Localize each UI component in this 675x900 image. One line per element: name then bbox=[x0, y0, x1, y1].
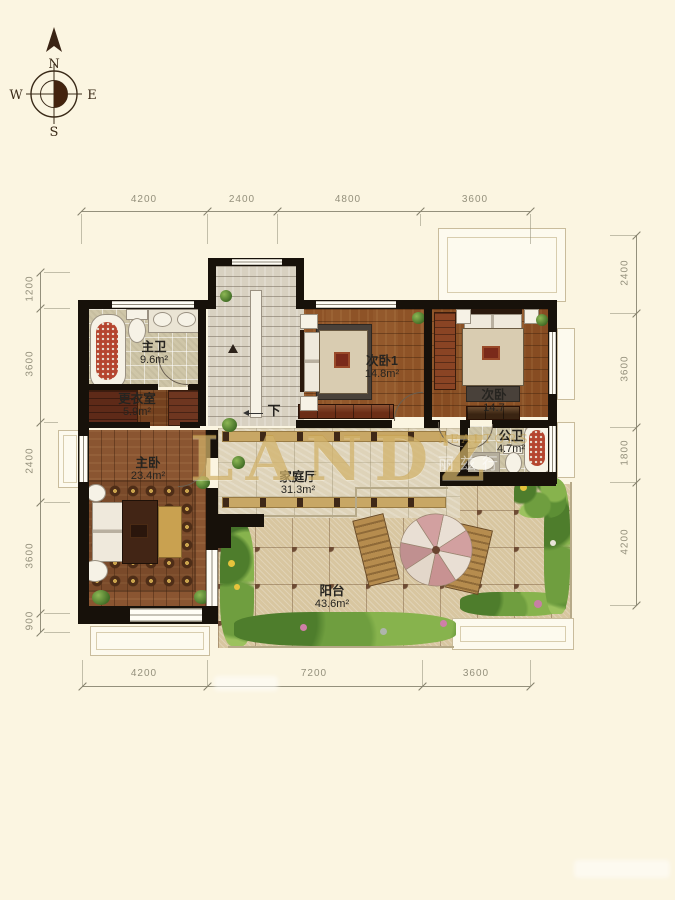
flower-dot bbox=[300, 624, 307, 631]
wall bbox=[88, 384, 158, 390]
dim-ext bbox=[44, 613, 70, 614]
dim-top-2: 4800 bbox=[298, 194, 398, 205]
dim-ext bbox=[420, 214, 421, 226]
room-area: 43.6m² bbox=[288, 598, 376, 610]
flower-dot bbox=[440, 620, 447, 627]
compass-half-fill bbox=[54, 81, 68, 108]
room-label-balcony: 阳台 43.6m² bbox=[288, 584, 376, 610]
faint-watermark bbox=[574, 860, 670, 878]
stair-direction-arrow-icon bbox=[228, 344, 238, 353]
dim-ext bbox=[81, 214, 82, 244]
wall bbox=[188, 384, 198, 390]
room-area: 9.6m² bbox=[124, 354, 184, 366]
room-area: 14.7 bbox=[464, 402, 524, 414]
wall bbox=[492, 420, 548, 428]
room-label-master-bedroom: 主卧 23.4m² bbox=[112, 456, 184, 482]
plant bbox=[220, 290, 232, 302]
dim-ext bbox=[44, 272, 70, 273]
dim-left-1: 3600 bbox=[25, 329, 36, 399]
stairs-down-arrow-line bbox=[248, 413, 263, 414]
floor-plan: N S W E 4200 2400 4800 3600 4200 7200 36… bbox=[0, 0, 675, 900]
bed-bench bbox=[158, 506, 182, 558]
greenery-strip bbox=[234, 612, 456, 646]
dim-ext bbox=[44, 308, 70, 309]
window-sill-right-1 bbox=[557, 328, 575, 400]
dim-top-0: 4200 bbox=[94, 194, 194, 205]
room-name: 次卧 bbox=[464, 388, 524, 402]
window bbox=[130, 608, 202, 622]
dim-top-1: 2400 bbox=[192, 194, 292, 205]
plant bbox=[92, 590, 110, 605]
dim-line-bottom bbox=[82, 686, 530, 687]
window bbox=[549, 332, 556, 394]
compass: N S W E bbox=[8, 24, 100, 140]
sink-basin bbox=[177, 312, 196, 327]
room-area: 14.8m² bbox=[348, 368, 416, 380]
balcony-bottom-edge bbox=[228, 646, 454, 648]
flower-dot bbox=[234, 584, 240, 590]
dim-right-0: 2400 bbox=[620, 238, 631, 308]
dim-top-3: 3600 bbox=[425, 194, 525, 205]
eave-outline-bottom-left-inner bbox=[96, 632, 204, 650]
wardrobe bbox=[434, 312, 456, 390]
stairs-down-text: 下 bbox=[264, 404, 284, 419]
plant bbox=[536, 314, 548, 326]
compass-n: N bbox=[48, 57, 59, 72]
wall bbox=[424, 300, 432, 422]
stone-dot bbox=[380, 628, 387, 635]
flower-dot bbox=[550, 540, 556, 546]
dim-ext bbox=[610, 605, 636, 606]
sink-basin bbox=[153, 312, 172, 327]
dim-ext bbox=[530, 660, 531, 686]
dim-ext bbox=[44, 632, 70, 633]
wall bbox=[88, 422, 150, 428]
window bbox=[316, 301, 396, 308]
window bbox=[112, 301, 194, 308]
balcony-door bbox=[206, 550, 218, 606]
dim-ext bbox=[207, 660, 208, 686]
stairs-down-arrow-icon bbox=[243, 410, 249, 416]
compass-s: S bbox=[50, 125, 59, 140]
dim-ext bbox=[422, 660, 423, 686]
dim-ext bbox=[44, 502, 70, 503]
balcony-right-edge bbox=[570, 482, 572, 618]
faint-watermark bbox=[214, 676, 278, 691]
patio-umbrella bbox=[396, 510, 476, 590]
bathtub-interior bbox=[96, 322, 118, 380]
bay-window-outline-left-inner bbox=[63, 435, 77, 483]
stair-railing bbox=[250, 290, 262, 418]
flower-dot bbox=[534, 600, 542, 608]
room-label-master-bath: 主卫 9.6m² bbox=[124, 340, 184, 366]
north-arrow-icon bbox=[46, 27, 62, 52]
dim-ext bbox=[44, 422, 58, 423]
room-label-bedroom2: 次卧 14.7 bbox=[464, 388, 524, 414]
compass-e: E bbox=[87, 88, 97, 103]
dim-line-top bbox=[81, 211, 530, 212]
dim-line-right bbox=[636, 235, 637, 605]
dim-right-2: 1800 bbox=[620, 418, 631, 488]
bed-tray bbox=[482, 346, 500, 360]
dim-bottom-2: 3600 bbox=[426, 668, 526, 679]
room-name: 主卫 bbox=[124, 340, 184, 354]
dim-ext bbox=[530, 214, 531, 244]
dim-ext bbox=[207, 214, 208, 244]
nightstand bbox=[300, 314, 318, 329]
room-label-bedroom1: 次卧1 14.8m² bbox=[348, 354, 416, 380]
dim-ext bbox=[610, 235, 636, 236]
roof-outline-top-right-inner bbox=[447, 237, 557, 293]
room-name: 更衣室 bbox=[100, 392, 174, 406]
dim-left-2: 2400 bbox=[25, 426, 36, 496]
dim-line-left bbox=[40, 272, 41, 632]
dim-right-1: 3600 bbox=[620, 334, 631, 404]
step-outline-balcony-corner-inner bbox=[460, 626, 566, 642]
watermark-sub-cn: 丽兹行 bbox=[438, 450, 558, 474]
flower-dot bbox=[228, 560, 235, 567]
watermark-sub: REALTORS bbox=[438, 432, 558, 446]
nightstand bbox=[300, 396, 318, 411]
wall bbox=[218, 514, 231, 548]
window bbox=[79, 436, 88, 482]
dim-left-0: 1200 bbox=[25, 254, 36, 324]
room-label-dressing: 更衣室 5.9m² bbox=[100, 392, 174, 418]
dim-ext bbox=[610, 313, 636, 314]
room-name: 主卧 bbox=[112, 456, 184, 470]
dim-bottom-0: 4200 bbox=[94, 668, 194, 679]
dim-right-3: 4200 bbox=[620, 507, 631, 577]
dim-ext bbox=[82, 660, 83, 686]
dim-left-4: 900 bbox=[25, 586, 36, 656]
bed-pillows bbox=[92, 502, 124, 562]
wall bbox=[208, 258, 216, 309]
dim-left-3: 3600 bbox=[25, 521, 36, 591]
side-table bbox=[86, 484, 106, 502]
window-sill-right-2 bbox=[557, 422, 575, 478]
dim-ext bbox=[277, 214, 278, 244]
stairs-down-label: 下 bbox=[264, 404, 284, 419]
compass-w: W bbox=[9, 88, 23, 103]
nightstand bbox=[456, 309, 471, 324]
room-area: 23.4m² bbox=[112, 470, 184, 482]
room-name: 阳台 bbox=[288, 584, 376, 598]
pergola-beam-2 bbox=[222, 497, 446, 508]
dim-bottom-1: 7200 bbox=[264, 668, 364, 679]
window bbox=[232, 259, 282, 265]
room-name: 次卧1 bbox=[348, 354, 416, 368]
wall bbox=[198, 300, 206, 426]
bed-tray bbox=[130, 524, 148, 538]
room-area: 5.9m² bbox=[100, 406, 174, 418]
